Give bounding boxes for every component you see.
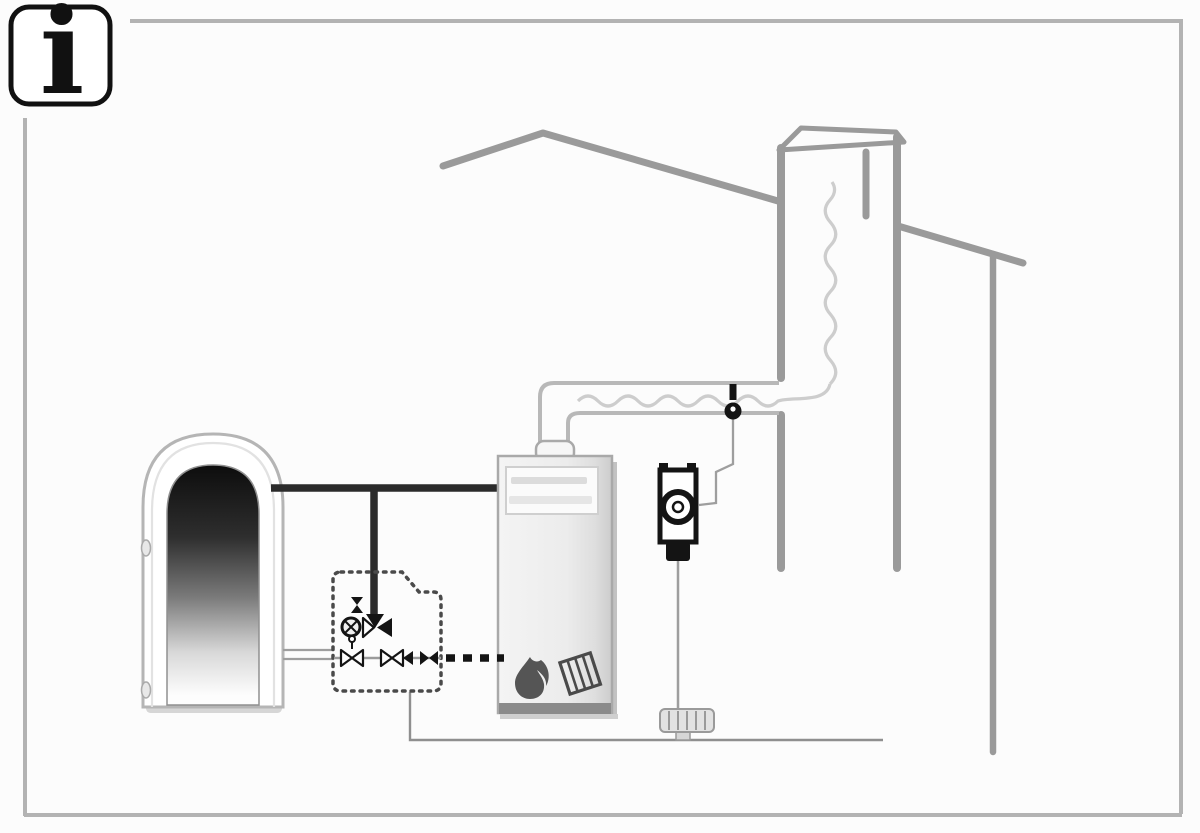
control-panel-display <box>511 477 587 484</box>
hot-water-storage-tank <box>142 434 284 713</box>
sensor-bulb-highlight <box>730 406 735 411</box>
flue-duct-outer <box>540 383 779 452</box>
shutoff-valve-3 <box>420 651 438 665</box>
pump-rotor-hub <box>673 502 683 512</box>
house-roof-left <box>443 133 778 201</box>
info-icon: i <box>40 0 85 121</box>
pump-bottom-connector <box>666 542 690 561</box>
circulation-pump <box>659 463 696 561</box>
wood-boiler <box>498 441 618 719</box>
check-valve <box>403 651 413 665</box>
flexible-flue-liner-vertical <box>825 182 836 384</box>
sensor-stem <box>730 384 737 400</box>
control-panel-buttons <box>509 496 592 504</box>
flue-duct-inner <box>568 413 779 452</box>
draft-regulator-fitting <box>660 709 714 740</box>
tank-connection-stub-upper <box>142 540 151 556</box>
info-badge: i <box>11 0 110 121</box>
boiler-base-band <box>499 703 611 714</box>
mixing-valve-assembly <box>334 597 441 666</box>
house-roof-right <box>898 226 1023 263</box>
manual-illustration-page: i <box>0 0 1200 833</box>
shutoff-valve-2 <box>381 650 403 666</box>
sensor-cable <box>699 419 733 505</box>
boiler-floor-shadow <box>500 714 618 719</box>
shutoff-valve-1 <box>341 650 363 666</box>
flue-duct <box>540 182 836 452</box>
chimney-top-opening <box>779 128 904 150</box>
shutoff-valve-1-handle <box>349 636 355 642</box>
installation-diagram: i <box>0 0 1200 833</box>
pump-cap-right <box>687 463 696 472</box>
tank-cutaway-water <box>167 465 259 705</box>
tank-connection-stub-lower <box>142 682 151 698</box>
flexible-flue-liner-horizontal <box>578 384 830 406</box>
boiler-control-panel <box>506 467 598 514</box>
pump-cap-left <box>659 463 668 472</box>
bypass-valve-icon <box>351 597 363 613</box>
ground-connection-line <box>410 692 883 740</box>
